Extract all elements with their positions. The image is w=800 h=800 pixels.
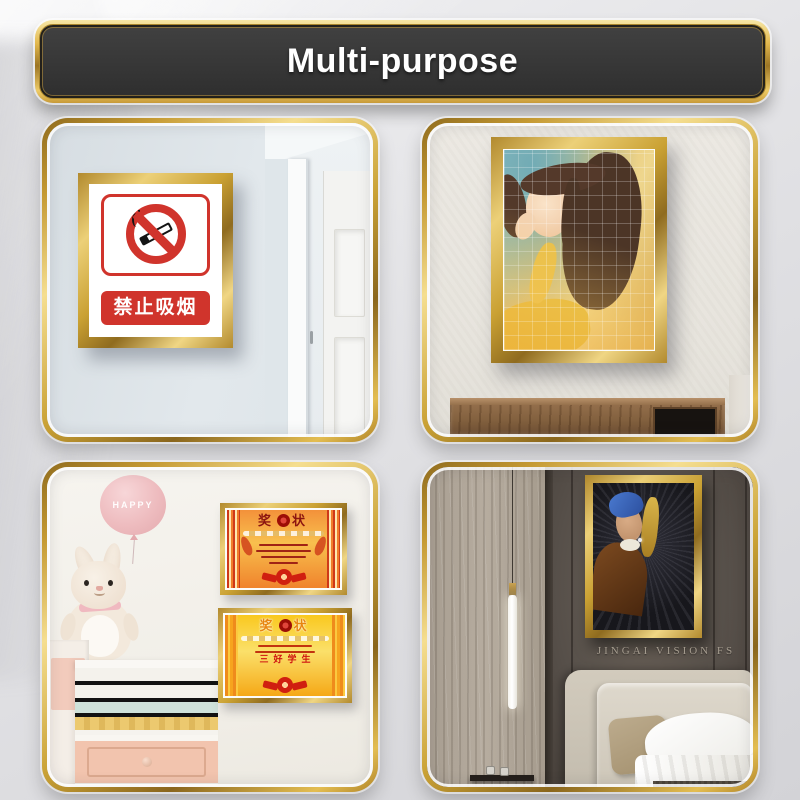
certificate-text-lines bbox=[249, 540, 318, 568]
pendant-wire bbox=[512, 467, 513, 585]
product-showcase-image: Multi-purpose bbox=[0, 0, 800, 800]
no-smoking-scene: 禁止吸烟 bbox=[47, 123, 373, 437]
curtain-edge bbox=[729, 375, 753, 437]
bunny-eye bbox=[108, 580, 113, 586]
pendant-light bbox=[503, 467, 523, 717]
title-char: 状 bbox=[292, 513, 309, 528]
dresser-drawers bbox=[75, 668, 218, 730]
certificate-frame-bottom: 奖状 三好学生 bbox=[218, 608, 352, 703]
hallway bbox=[265, 123, 373, 437]
dice-decor bbox=[500, 767, 509, 776]
wood-grain-panel bbox=[427, 467, 545, 787]
pendant-tube bbox=[508, 595, 517, 709]
bedroom-scene: JINGAI VISION FS bbox=[427, 467, 753, 787]
white-door bbox=[323, 171, 373, 437]
door-panel bbox=[334, 229, 365, 317]
dresser-top bbox=[75, 660, 218, 668]
door-handle bbox=[310, 331, 313, 344]
panel-gap bbox=[545, 467, 553, 787]
pink-drawer bbox=[75, 741, 218, 783]
door-panel bbox=[334, 337, 365, 437]
drawer bbox=[75, 668, 218, 681]
title-char: 状 bbox=[294, 618, 311, 633]
rosette-icon bbox=[277, 677, 293, 693]
bunny-eye bbox=[84, 580, 89, 586]
balloon-label: HAPPY bbox=[112, 500, 153, 510]
collar-shape bbox=[620, 539, 640, 551]
panel-photo-puzzle-scene bbox=[422, 118, 758, 442]
no-smoking-icon bbox=[101, 194, 210, 276]
puzzle-photo-frame bbox=[491, 137, 667, 363]
bedside-shelf bbox=[470, 775, 534, 781]
drawer-knob bbox=[142, 757, 152, 767]
drawer bbox=[75, 685, 218, 698]
painting-frame bbox=[585, 475, 702, 638]
dice-decor bbox=[486, 766, 495, 775]
banner: Multi-purpose bbox=[35, 20, 770, 103]
panel-bedroom-scene: JINGAI VISION FS bbox=[422, 462, 758, 792]
no-smoking-label: 禁止吸烟 bbox=[101, 291, 210, 325]
award-certificate: 奖状 bbox=[227, 510, 340, 588]
drawer bbox=[75, 785, 139, 787]
pearl-earring-shape bbox=[638, 538, 642, 542]
console-opening bbox=[653, 407, 717, 437]
bunny-head bbox=[71, 561, 126, 609]
door-frame bbox=[288, 159, 308, 437]
banner-title: Multi-purpose bbox=[287, 42, 518, 81]
award-certificate: 奖状 三好学生 bbox=[225, 615, 345, 696]
girl-with-pearl-earring-painting bbox=[593, 483, 694, 630]
wooden-console bbox=[450, 398, 725, 437]
award-seal-icon bbox=[277, 514, 290, 527]
scroll-ornament bbox=[243, 531, 324, 536]
drawer bbox=[75, 702, 218, 713]
rosette-icon bbox=[276, 569, 292, 585]
certificate-title: 奖状 bbox=[227, 513, 340, 528]
puzzle-grid-overlay bbox=[504, 150, 654, 350]
pink-balloon: HAPPY bbox=[100, 475, 166, 535]
brand-watermark: JINGAI VISION FS bbox=[579, 645, 753, 657]
drawer bbox=[75, 717, 218, 730]
title-char: 奖 bbox=[258, 513, 275, 528]
kids-room-scene: HAPPY bbox=[47, 467, 373, 787]
title-char: 奖 bbox=[259, 618, 276, 633]
award-seal-icon bbox=[279, 619, 292, 632]
panel-no-smoking-scene: 禁止吸烟 bbox=[42, 118, 378, 442]
no-smoking-sign-frame: 禁止吸烟 bbox=[78, 173, 233, 348]
certificate-frame-top: 奖状 bbox=[220, 503, 347, 595]
girl-portrait-puzzle bbox=[504, 150, 654, 350]
no-smoking-sign: 禁止吸烟 bbox=[89, 184, 222, 337]
photo-puzzle-scene bbox=[427, 123, 753, 437]
banner-plate: Multi-purpose bbox=[39, 24, 766, 99]
foot-blanket bbox=[653, 781, 753, 787]
pendant-cap bbox=[509, 583, 516, 595]
kids-dresser bbox=[75, 660, 218, 787]
panel-kids-room-scene: HAPPY bbox=[42, 462, 378, 792]
bottom-drawers bbox=[75, 783, 218, 787]
bunny-mouth bbox=[94, 590, 105, 596]
console-top-face bbox=[450, 398, 725, 405]
certificate-center-text: 三好学生 bbox=[225, 652, 345, 665]
certificate-title: 奖状 bbox=[225, 618, 345, 633]
